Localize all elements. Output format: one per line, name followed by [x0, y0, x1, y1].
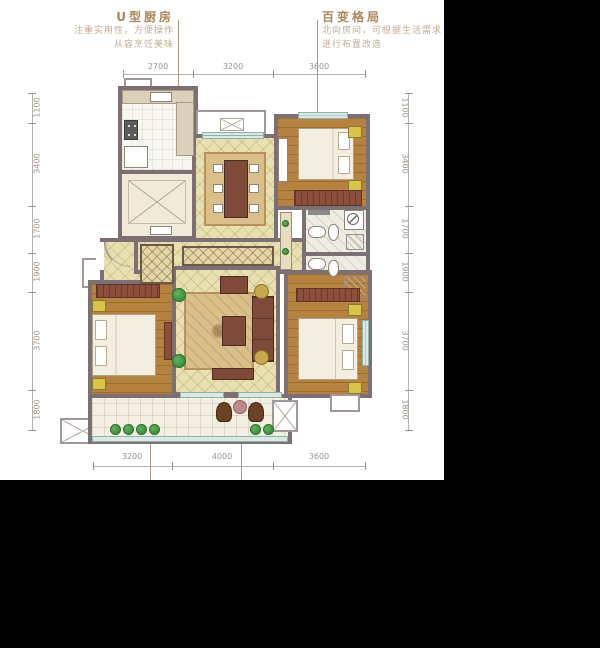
dim-bottom-1: 3200: [117, 452, 147, 461]
balcony-table-icon: [233, 400, 247, 414]
wardrobe-icon: [294, 190, 362, 206]
dim-left-6: 1800: [33, 395, 42, 425]
annotation-flexible-desc-2: 进行布置改造: [322, 38, 442, 52]
plant-icon: [110, 424, 121, 435]
plant-icon: [282, 220, 289, 227]
annotation-flexible-desc-1: 北向房间，可根据生活需求: [322, 24, 442, 38]
dim-line-bottom: [93, 466, 365, 467]
ac-platform-southeast: [272, 400, 298, 432]
dim-tick: [273, 462, 274, 470]
ac-unit-icon: [220, 118, 244, 131]
plant-icon: [250, 424, 261, 435]
dim-right-5: 3700: [401, 326, 410, 356]
dim-tick: [405, 430, 413, 431]
pillow-icon: [95, 346, 107, 366]
window-living-balcony-1: [180, 392, 224, 398]
dim-top-2: 3200: [218, 62, 248, 71]
dim-left-2: 3400: [33, 149, 42, 179]
plant-icon: [136, 424, 147, 435]
dim-tick: [405, 206, 413, 207]
annotation-kitchen-title: U型厨房: [54, 8, 174, 25]
nightstand-icon: [92, 300, 106, 312]
balcony-chair-icon: [216, 402, 232, 422]
dim-bottom-2: 4000: [207, 452, 237, 461]
plant-icon: [282, 248, 289, 255]
hallway-runner-rug: [182, 246, 274, 266]
side-table-icon: [254, 284, 269, 299]
dim-left-3: 1700: [33, 214, 42, 244]
dim-right-6: 1800: [401, 395, 410, 425]
dim-tick: [365, 462, 366, 470]
dim-left-5: 3700: [33, 326, 42, 356]
pillow-icon: [342, 350, 354, 370]
chair-icon: [249, 204, 259, 213]
dim-tick: [28, 206, 36, 207]
tv-cabinet-icon: [212, 368, 254, 380]
nightstand-icon: [348, 126, 362, 138]
chair-icon: [213, 204, 223, 213]
dim-tick: [28, 390, 36, 391]
pillow-icon: [342, 324, 354, 344]
dim-tick: [93, 462, 94, 470]
kitchen-sink-icon: [150, 92, 172, 102]
window-bedroom-southeast: [362, 320, 369, 366]
wardrobe-icon: [96, 284, 160, 298]
dim-tick: [193, 70, 194, 78]
dim-line-top: [123, 74, 365, 75]
dresser-icon: [164, 322, 172, 360]
nightstand-icon: [348, 304, 362, 316]
dim-right-2: 3400: [401, 149, 410, 179]
bath-label-box: [308, 210, 330, 215]
annotation-kitchen-desc-1: 注重实用性，方便操作: [24, 24, 174, 38]
annotation-flexible-title: 百变格局: [322, 8, 442, 25]
dim-right-4: 1900: [401, 257, 410, 287]
kitchen-counter-right: [176, 102, 194, 156]
window-bedroom-north: [298, 112, 348, 119]
dim-left-4: 1900: [33, 257, 42, 287]
pillow-icon: [95, 320, 107, 340]
dim-tick: [28, 292, 36, 293]
coffee-table-icon: [222, 316, 246, 346]
plant-icon: [263, 424, 274, 435]
toilet-icon: [328, 260, 339, 277]
dim-tick: [405, 390, 413, 391]
dim-bottom-3: 3600: [304, 452, 334, 461]
fridge-icon: [124, 146, 148, 168]
side-table-icon: [254, 350, 269, 365]
window-living-balcony-2: [238, 392, 282, 398]
dim-right-3: 1700: [401, 214, 410, 244]
foyer-rug: [140, 244, 174, 284]
dim-top-1: 2700: [143, 62, 173, 71]
plant-icon: [123, 424, 134, 435]
shower-icon: [346, 234, 364, 250]
sink-icon: [308, 226, 326, 238]
dim-tick: [28, 253, 36, 254]
chair-icon: [249, 184, 259, 193]
floorplan-panel: U型厨房 注重实用性，方便操作 从容烹饪美味 百变格局 北向房间，可根据生活需求…: [0, 0, 444, 480]
dim-tick: [405, 253, 413, 254]
screenshot-canvas: U型厨房 注重实用性，方便操作 从容烹饪美味 百变格局 北向房间，可根据生活需求…: [0, 0, 600, 648]
cabinet-icon: [278, 138, 288, 182]
dim-tick: [28, 123, 36, 124]
window-dining: [202, 132, 264, 139]
dim-tick: [405, 292, 413, 293]
armchair-icon: [220, 276, 248, 294]
sink-icon: [308, 258, 326, 270]
flex-room-cabinet: [150, 226, 172, 235]
plant-icon: [172, 288, 186, 302]
chair-icon: [213, 184, 223, 193]
pillow-icon: [338, 156, 350, 174]
stove-icon: [124, 120, 138, 140]
dining-table-icon: [224, 160, 248, 218]
washing-machine-drum-icon: [347, 213, 359, 225]
chair-icon: [249, 164, 259, 173]
dim-left-1: 1100: [33, 93, 42, 123]
nightstand-icon: [348, 382, 362, 394]
dim-top-3: 3600: [304, 62, 334, 71]
balcony-chair-icon: [248, 402, 264, 422]
toilet-icon: [328, 224, 339, 241]
plant-icon: [149, 424, 160, 435]
dim-tick: [365, 70, 366, 78]
entry-door-opening: [96, 242, 104, 270]
annotation-kitchen-desc-2: 从容烹饪美味: [24, 38, 174, 52]
bay-window-south: [330, 394, 360, 412]
balcony-railing: [92, 436, 288, 442]
dim-tick: [28, 430, 36, 431]
flex-room-x-marking: [128, 180, 186, 224]
dim-tick: [123, 70, 124, 78]
wardrobe-icon: [296, 288, 360, 302]
dim-tick: [273, 70, 274, 78]
dim-tick: [172, 462, 173, 470]
dim-tick: [405, 123, 413, 124]
chair-icon: [213, 164, 223, 173]
dim-right-1: 1100: [401, 93, 410, 123]
nightstand-icon: [92, 378, 106, 390]
plant-icon: [172, 354, 186, 368]
